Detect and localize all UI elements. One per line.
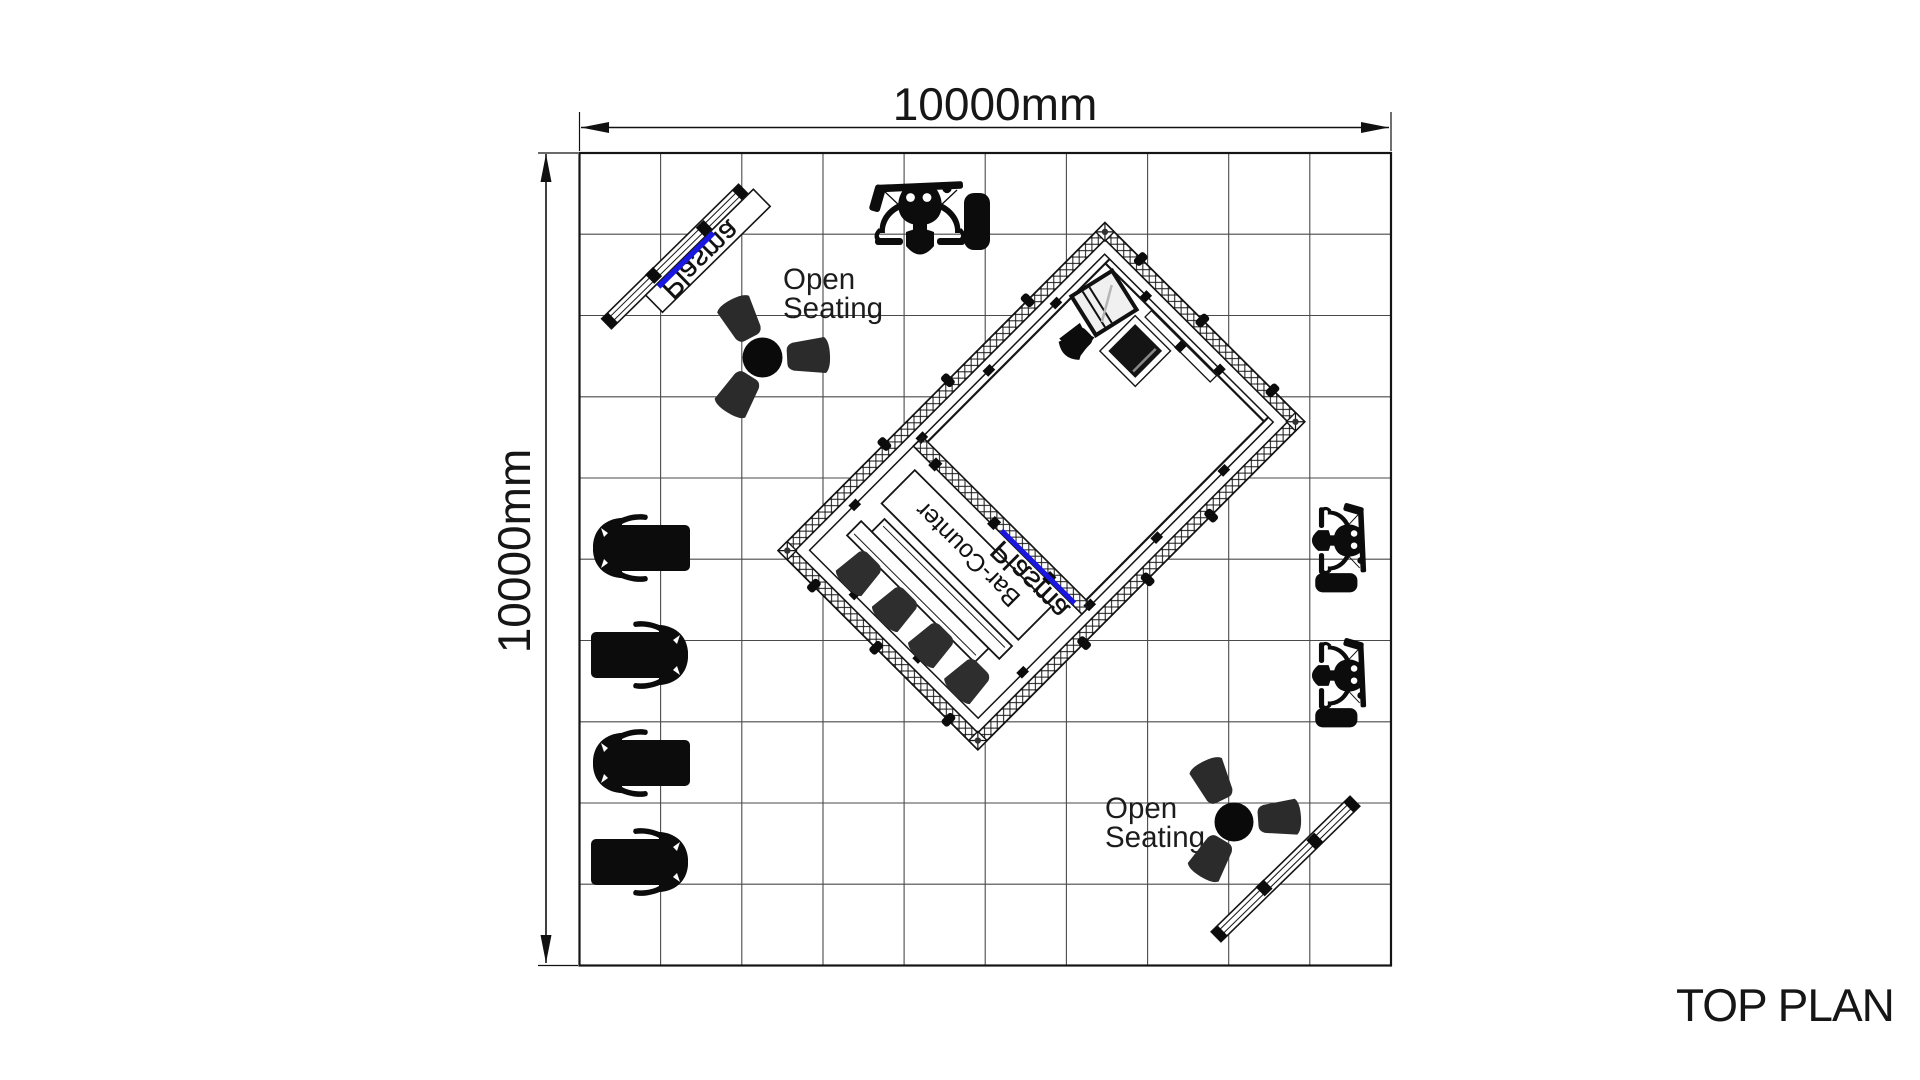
svg-text:10000mm: 10000mm [488, 449, 540, 654]
svg-text:Seating: Seating [783, 292, 883, 325]
svg-text:TOP PLAN: TOP PLAN [1676, 979, 1894, 1031]
svg-text:10000mm: 10000mm [893, 78, 1098, 130]
svg-text:Seating: Seating [1105, 821, 1205, 854]
